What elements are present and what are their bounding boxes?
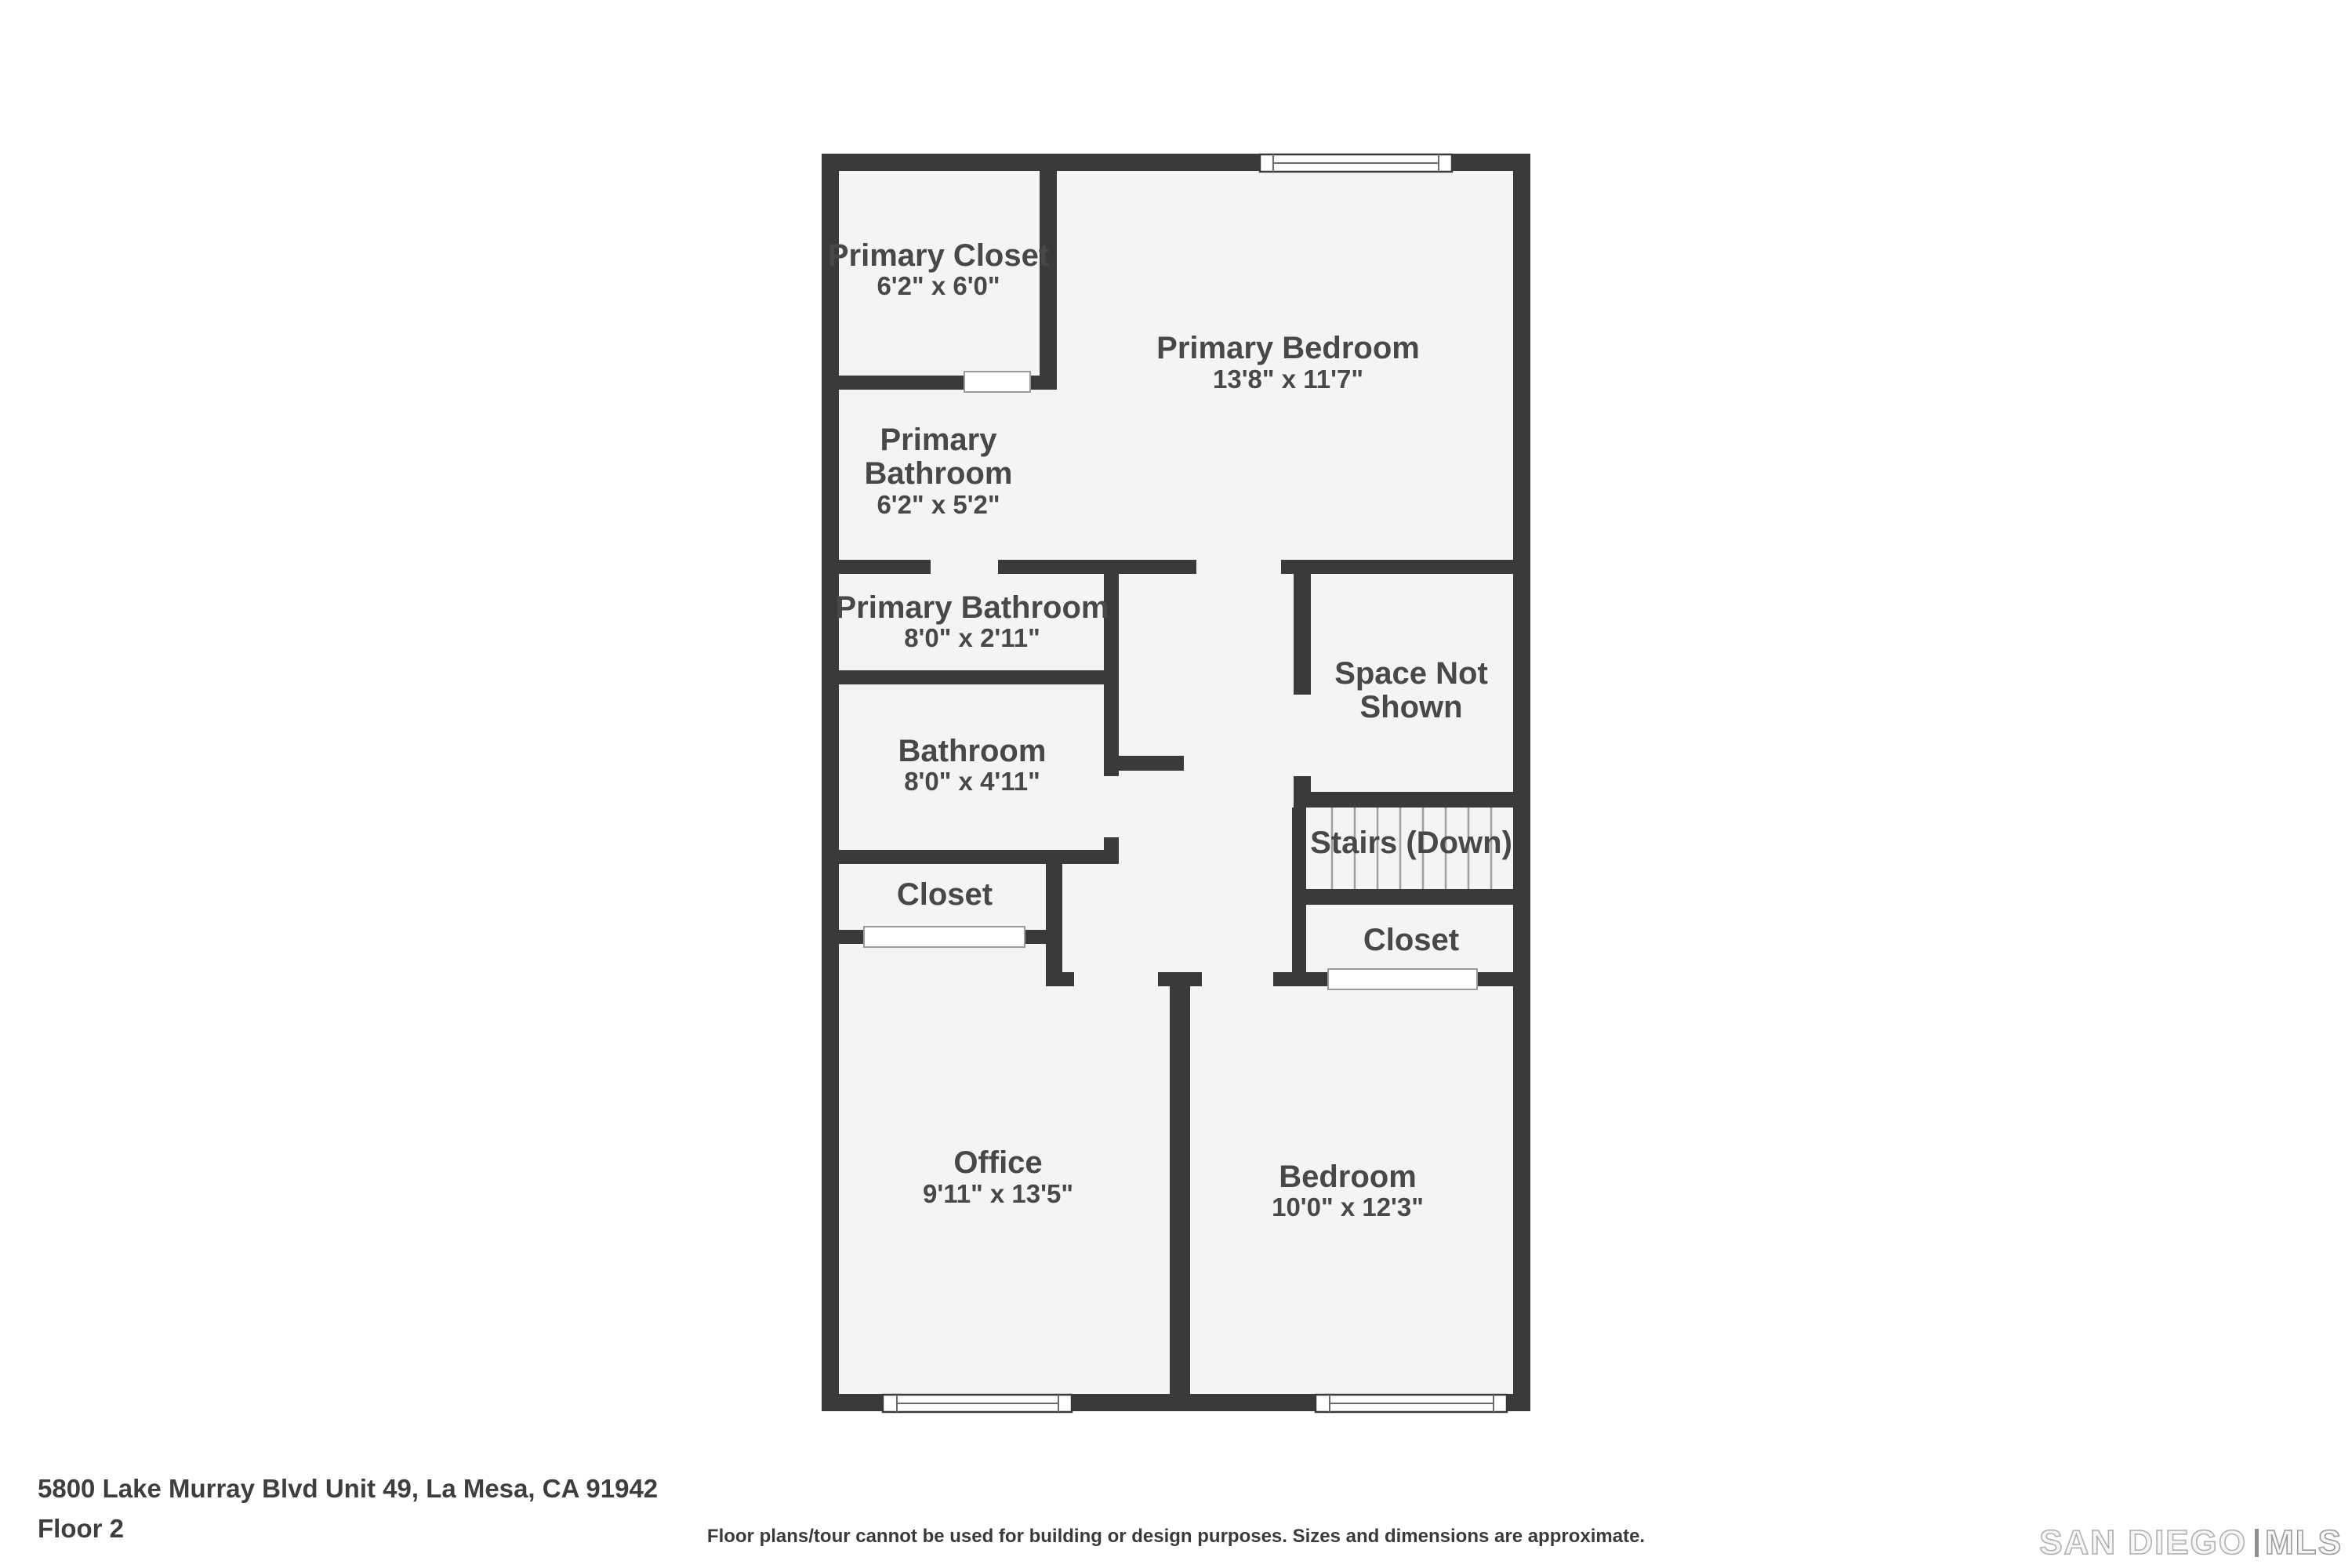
room-label-primary-bedroom-name: Primary Bedroom bbox=[1156, 331, 1420, 365]
room-label-primary-bathroom-alcove-dims: 6'2" x 5'2" bbox=[877, 490, 1000, 519]
room-label-stairs-down-name: Stairs (Down) bbox=[1310, 826, 1512, 860]
room-label-primary-bathroom-room-name: Primary Bathroom bbox=[836, 590, 1109, 625]
room-label-bathroom-name: Bathroom bbox=[898, 734, 1047, 768]
room-label-office-dims: 9'11" x 13'5" bbox=[923, 1179, 1073, 1208]
room-label-closet-left-name: Closet bbox=[897, 877, 993, 912]
closet-right-door bbox=[1328, 969, 1477, 989]
bedroom-window bbox=[1316, 1395, 1507, 1412]
room-label-space-not-shown-line2: Shown bbox=[1359, 690, 1462, 724]
room-label-space-not-shown-line1: Space Not bbox=[1334, 656, 1488, 691]
room-label-primary-bedroom-dims: 13'8" x 11'7" bbox=[1213, 365, 1363, 394]
closet-left-door bbox=[864, 927, 1025, 947]
sandiego-mls-logo: SAN DIEGO MLS bbox=[2039, 1524, 2343, 1562]
room-label-primary-bathroom-alcove-line1: Primary bbox=[880, 423, 998, 457]
primary-bedroom-window bbox=[1260, 154, 1452, 172]
logo-divider-bar bbox=[2255, 1529, 2259, 1557]
property-address: 5800 Lake Murray Blvd Unit 49, La Mesa, … bbox=[38, 1474, 658, 1504]
room-label-bedroom-dims: 10'0" x 12'3" bbox=[1272, 1192, 1424, 1221]
room-label-primary-closet-name: Primary Closet bbox=[828, 238, 1049, 273]
office-window bbox=[883, 1395, 1072, 1412]
room-label-office-name: Office bbox=[953, 1145, 1042, 1180]
room-label-closet-right-name: Closet bbox=[1363, 923, 1459, 957]
logo-san-diego: SAN DIEGO bbox=[2039, 1523, 2247, 1563]
primary-closet-door bbox=[964, 372, 1030, 392]
room-label-bathroom-dims: 8'0" x 4'11" bbox=[904, 767, 1040, 796]
room-label-primary-closet-dims: 6'2" x 6'0" bbox=[877, 271, 1000, 300]
floor-plan: Primary Closet6'2" x 6'0"Primary Bedroom… bbox=[0, 0, 2352, 1568]
room-label-bedroom-name: Bedroom bbox=[1279, 1160, 1417, 1194]
disclaimer-text: Floor plans/tour cannot be used for buil… bbox=[0, 1526, 2352, 1548]
room-label-primary-bathroom-alcove-line2: Bathroom bbox=[865, 456, 1013, 491]
room-label-primary-bathroom-room-dims: 8'0" x 2'11" bbox=[904, 623, 1040, 652]
logo-mls: MLS bbox=[2265, 1523, 2343, 1563]
